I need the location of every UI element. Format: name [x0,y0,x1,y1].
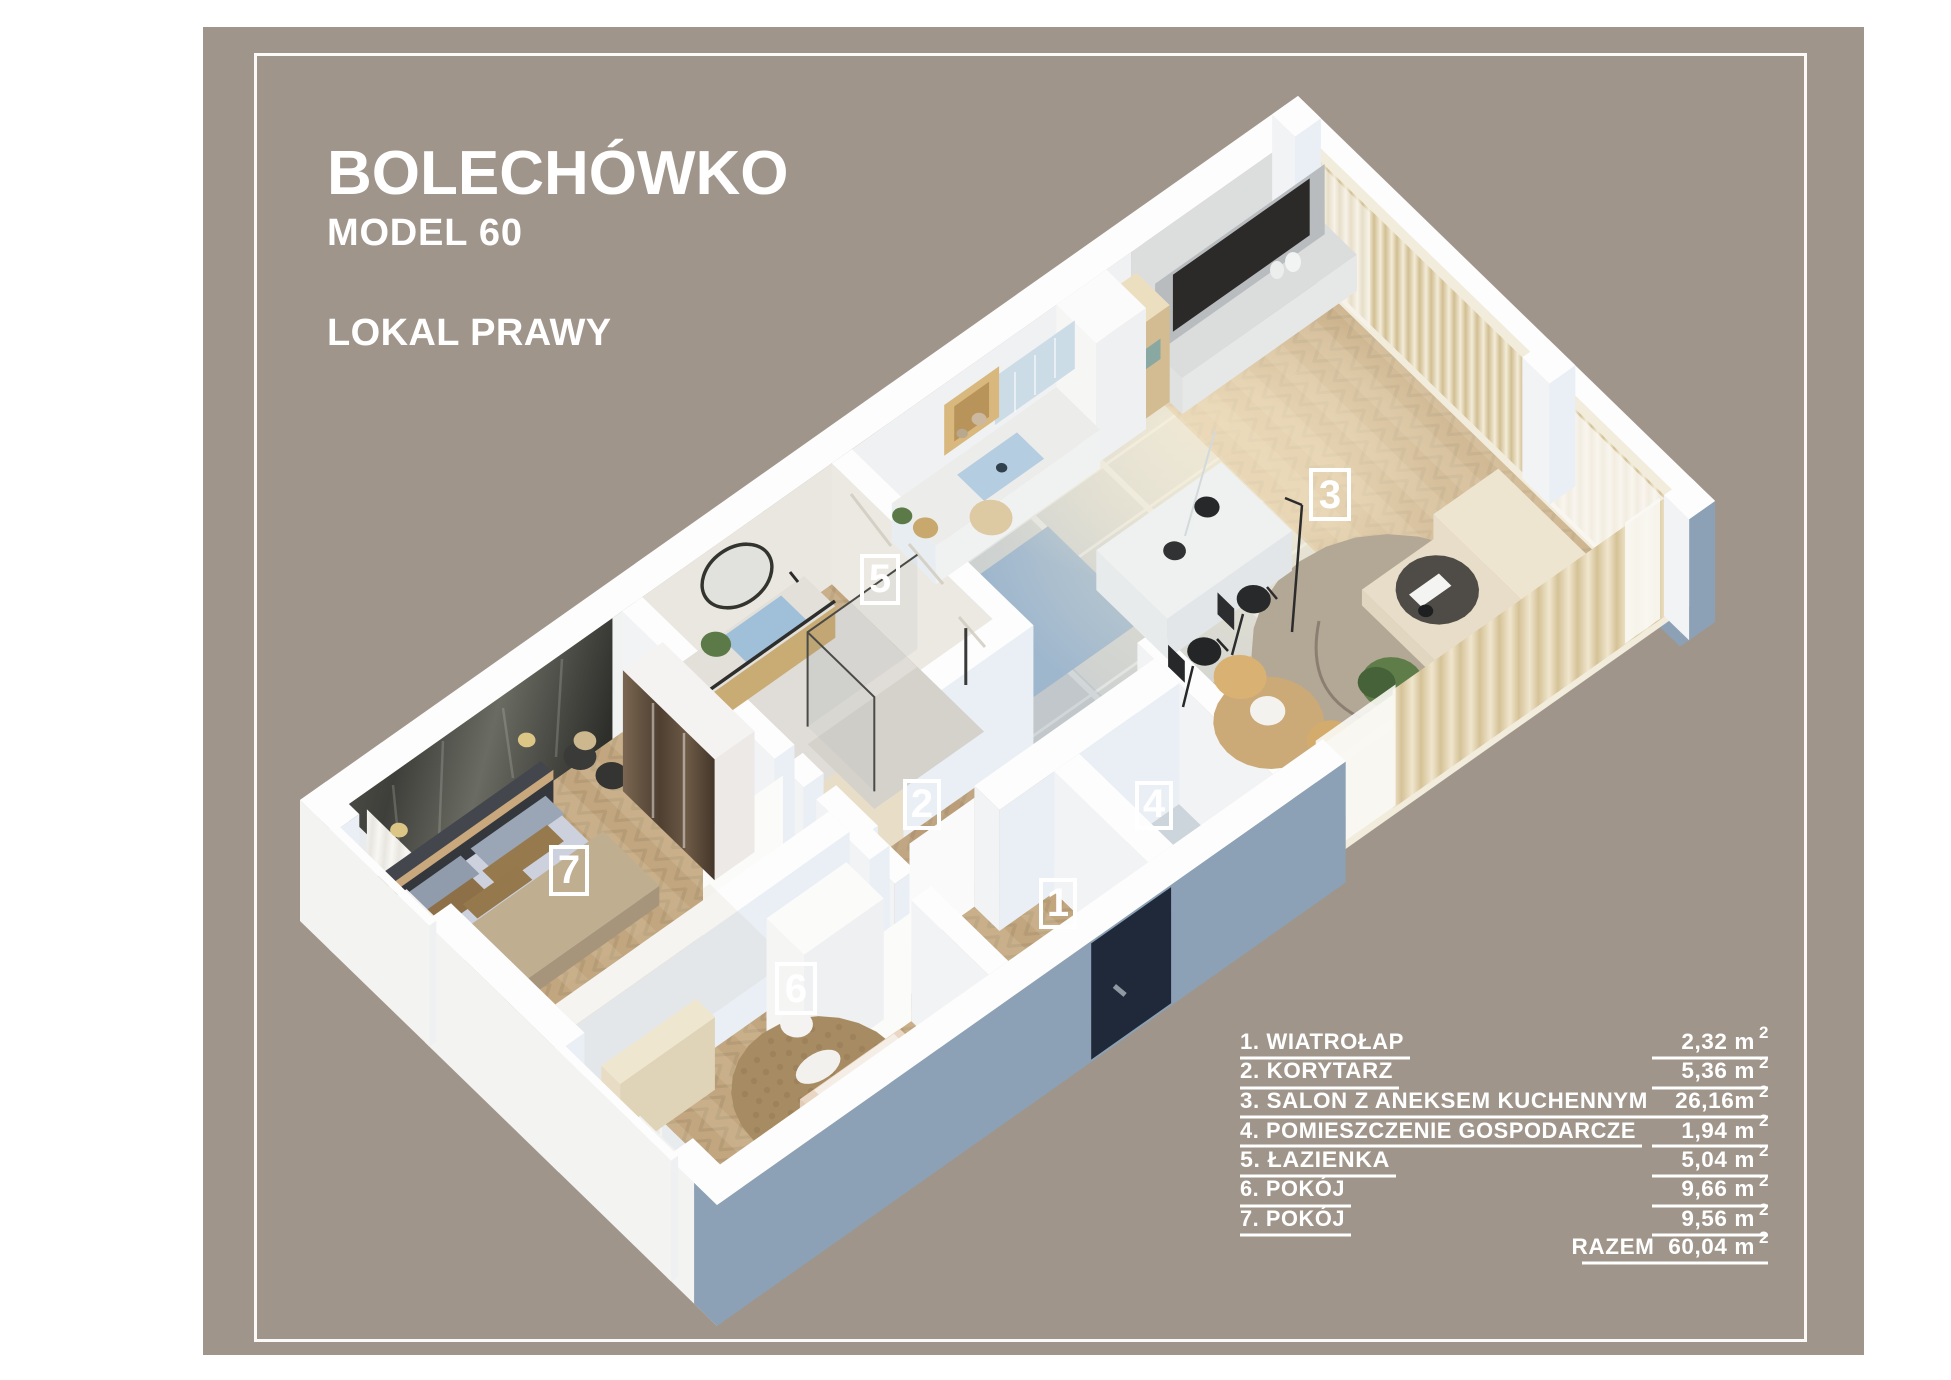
svg-text:4. POMIESZCZENIE GOSPODARCZE: 4. POMIESZCZENIE GOSPODARCZE [1240,1118,1636,1143]
svg-text:1,94 m: 1,94 m [1681,1118,1755,1143]
svg-text:9,66 m: 9,66 m [1681,1176,1755,1201]
svg-text:3. SALON Z ANEKSEM KUCHENNYM: 3. SALON Z ANEKSEM KUCHENNYM [1240,1088,1648,1113]
svg-text:5,04 m: 5,04 m [1681,1147,1755,1172]
svg-text:5. ŁAZIENKA: 5. ŁAZIENKA [1240,1147,1390,1172]
svg-text:3: 3 [1319,473,1341,517]
svg-text:7. POKÓJ: 7. POKÓJ [1240,1206,1345,1231]
svg-text:6. POKÓJ: 6. POKÓJ [1240,1176,1345,1201]
svg-text:2: 2 [911,782,933,826]
svg-text:2: 2 [1759,1082,1768,1101]
svg-text:2,32 m: 2,32 m [1681,1029,1755,1054]
svg-text:1. WIATROŁAP: 1. WIATROŁAP [1240,1029,1404,1054]
svg-text:9,56 m: 9,56 m [1681,1206,1755,1231]
svg-text:2: 2 [1759,1053,1768,1072]
svg-text:6: 6 [785,967,807,1011]
svg-text:26,16m: 26,16m [1675,1088,1755,1113]
svg-text:2. KORYTARZ: 2. KORYTARZ [1240,1058,1393,1083]
svg-text:2: 2 [1759,1171,1768,1190]
svg-text:2: 2 [1759,1228,1768,1247]
svg-text:RAZEM 60,04 m: RAZEM 60,04 m [1572,1234,1755,1259]
svg-text:2: 2 [1759,1141,1768,1160]
svg-text:5,36 m: 5,36 m [1681,1058,1755,1083]
svg-text:7: 7 [558,848,580,892]
svg-text:4: 4 [1143,782,1166,826]
svg-text:2: 2 [1759,1111,1768,1130]
svg-text:2: 2 [1759,1200,1768,1219]
svg-text:1: 1 [1047,881,1069,925]
svg-text:5: 5 [869,557,891,601]
svg-text:2: 2 [1759,1023,1768,1042]
